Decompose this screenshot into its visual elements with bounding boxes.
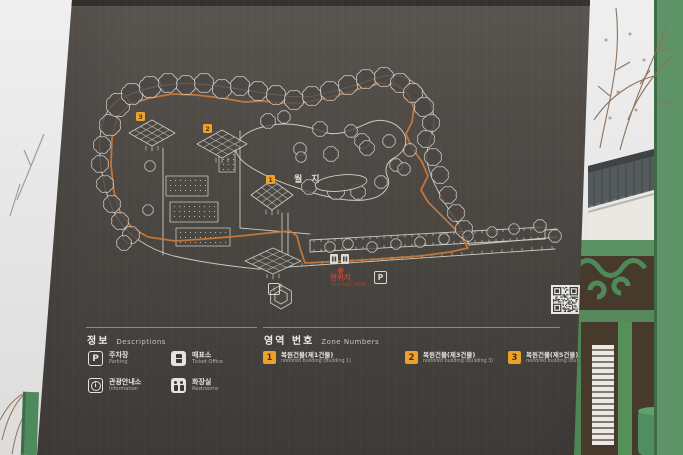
fence-post-right — [654, 0, 683, 455]
photo-of-sign: 월지 1 2 3 P i 현위치 YOU ARE HERE 정보 Descrip… — [0, 0, 683, 455]
lattice-door — [592, 345, 614, 445]
fence-post-left — [21, 392, 39, 455]
gate-bar — [618, 322, 632, 455]
tree-branch-left — [10, 134, 44, 216]
